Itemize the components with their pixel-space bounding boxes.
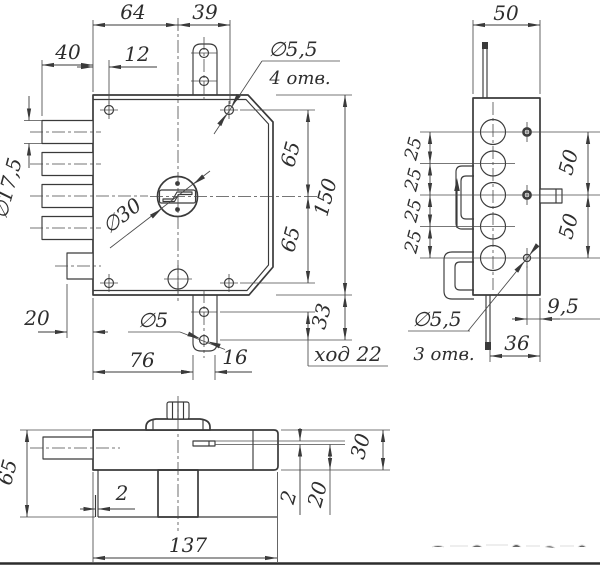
holes-top-diameter-label: ∅5,5 <box>268 37 317 61</box>
dim-9-5-label: 9,5 <box>547 294 579 318</box>
cylinder-pin-top <box>175 181 180 186</box>
bottom-rod-tip <box>485 342 491 350</box>
dim-20-label: 20 <box>23 306 50 330</box>
corner-hole-br <box>220 274 238 292</box>
latch-housing <box>444 252 474 299</box>
watermark-smudge <box>432 545 586 549</box>
corner-hole-tr <box>220 101 238 119</box>
side-holes-diameter-label: ∅5,5 <box>412 307 461 331</box>
side-holes-count-label: 3 отв. <box>413 344 474 365</box>
dim-33-label: 33 <box>306 301 336 332</box>
holes-top-count-label: 4 отв. <box>268 68 330 89</box>
stroke-label: ход 22 <box>314 342 382 366</box>
dim-25-2-label: 25 <box>400 166 426 195</box>
dim-16-label: 16 <box>222 345 248 369</box>
dim-25-3-label: 25 <box>400 197 426 226</box>
spindle-stub <box>540 189 562 203</box>
dim-65-lower-label: 65 <box>275 224 305 255</box>
technical-drawing-canvas: 64 39 40 12 ∅5,5 4 отв. ∅17,5 ∅30 65 150… <box>0 0 600 565</box>
dim-39-label: 39 <box>192 0 218 24</box>
bottom-dim-20-label: 20 <box>302 479 332 511</box>
tab-hole-diameter-label: ∅5 <box>138 308 168 332</box>
dim-25-4-label: 25 <box>400 228 426 257</box>
dim-76-label: 76 <box>129 348 155 372</box>
front-view: 64 39 40 12 ∅5,5 4 отв. ∅17,5 ∅30 65 150… <box>0 0 388 380</box>
bottom-dim-137-label: 137 <box>169 533 207 557</box>
bottom-dim-65-label: 65 <box>0 457 22 488</box>
lock-drawing-svg: 64 39 40 12 ∅5,5 4 отв. ∅17,5 ∅30 65 150… <box>0 0 600 565</box>
motion-up-arrow <box>454 178 460 191</box>
top-rod-tip <box>482 42 488 49</box>
bottom-view: 65 2 137 2 20 30 <box>0 396 390 562</box>
cylinder-pin-bottom <box>175 207 180 212</box>
dim-40-label: 40 <box>54 40 81 64</box>
dim-50-top-label: 50 <box>493 1 519 25</box>
corner-hole-bl <box>100 274 118 292</box>
dim-64-label: 64 <box>120 0 145 24</box>
dim-25-1-label: 25 <box>400 135 426 164</box>
bottom-dim-2-left-label: 2 <box>115 481 129 505</box>
bottom-dim-2-right-label: 2 <box>275 488 302 507</box>
bolt-diameter-label: ∅17,5 <box>0 155 27 221</box>
cylinder-diameter-label: ∅30 <box>97 193 146 238</box>
dim-150-label: 150 <box>309 175 342 218</box>
dim-50-right-upper-label: 50 <box>553 147 583 178</box>
bottom-body <box>93 430 278 470</box>
side-view: 50 25 25 25 25 50 50 9,5 36 ∅5,5 3 отв. <box>400 1 600 365</box>
dim-36-label: 36 <box>504 331 530 355</box>
dim-12-label: 12 <box>124 42 149 66</box>
dim-50-right-lower-label: 50 <box>553 211 583 242</box>
dim-65-upper-label: 65 <box>275 139 305 170</box>
bottom-dim-30-label: 30 <box>345 431 375 462</box>
